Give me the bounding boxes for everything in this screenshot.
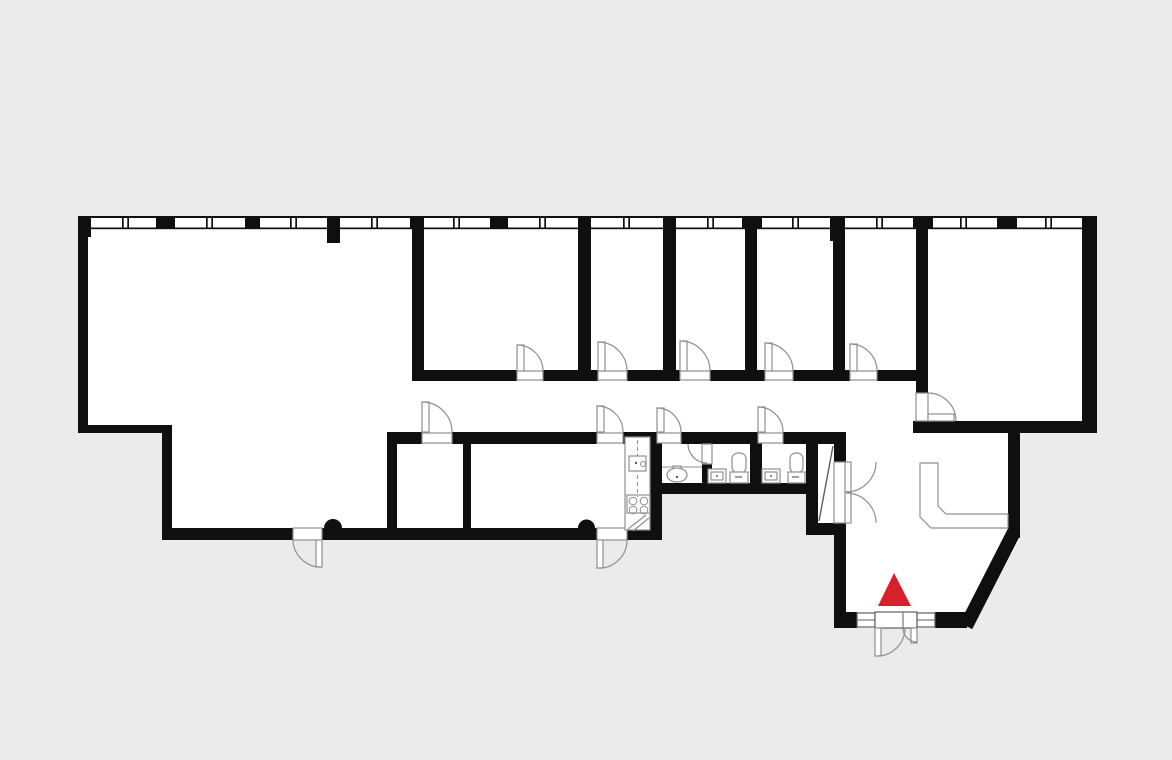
- bath-a-basin: [667, 468, 687, 482]
- left-step-wall: [78, 425, 172, 433]
- window-pier: [578, 217, 591, 229]
- mullion-bar: [544, 217, 546, 229]
- bath-c-right-wall: [806, 432, 818, 535]
- wall-fg-upper: [916, 229, 928, 393]
- mullion-bar: [792, 217, 794, 229]
- window-pier: [913, 217, 933, 229]
- mullion-bar: [1045, 217, 1047, 229]
- mullion-bar: [539, 217, 541, 229]
- door-leaf: [928, 414, 954, 421]
- mullion-bar: [623, 217, 625, 229]
- wall-fg-lower: [916, 421, 928, 433]
- top-left-corner-block: [78, 217, 91, 237]
- door-leaf: [765, 343, 772, 371]
- left-lower-wall: [162, 433, 172, 540]
- mullion-bar: [628, 217, 630, 229]
- door-leaf: [758, 407, 765, 432]
- entrance-right-wall: [1008, 433, 1020, 538]
- window-pier: [742, 217, 762, 229]
- mullion-bar: [1050, 217, 1052, 229]
- window-pier: [245, 217, 260, 229]
- bath-c-basin-drain: [770, 475, 772, 477]
- window-pier: [997, 217, 1017, 229]
- window-pier: [663, 217, 676, 229]
- window-pier: [830, 217, 845, 229]
- mullion-bar: [122, 217, 124, 229]
- door-sill: [422, 433, 452, 443]
- mullion-bar: [453, 217, 455, 229]
- door-leaf: [597, 540, 603, 568]
- rooms-bottom-wall-3: [627, 370, 680, 381]
- door-leaf: [850, 344, 857, 371]
- bath-b-toilet-bowl: [732, 453, 746, 473]
- column-top-wall: [327, 229, 340, 243]
- divider-wall-bc: [578, 229, 591, 381]
- door-sill: [916, 393, 928, 421]
- door-sill: [765, 371, 793, 380]
- kitchen-sink-drain: [635, 462, 637, 464]
- double-door-leaf-upper: [845, 462, 851, 492]
- mullion-bar: [127, 217, 129, 229]
- rooms-bottom-wall-1: [412, 370, 517, 381]
- door-leaf: [316, 540, 322, 567]
- door-sill: [597, 433, 623, 443]
- door-leaf: [680, 341, 687, 371]
- mullion-bar: [876, 217, 878, 229]
- double-door-leaf-lower: [845, 492, 851, 523]
- door-leaf: [657, 408, 664, 432]
- corridor-bottom-wall-2: [452, 432, 597, 444]
- double-door-sill: [834, 462, 846, 523]
- rooms-bottom-wall-4: [710, 370, 765, 381]
- door-sill: [598, 371, 627, 380]
- door-leaf: [422, 402, 429, 432]
- mullion-bar: [206, 217, 208, 229]
- mullion-bar: [295, 217, 297, 229]
- mullion-bar: [290, 217, 292, 229]
- entrance-door-leaf-left: [875, 628, 881, 656]
- mullion-bar: [211, 217, 213, 229]
- divider-wall-ef: [833, 229, 845, 381]
- divider-wall-cd: [663, 229, 676, 381]
- mullion-bar: [458, 217, 460, 229]
- bath-b-basin-drain: [716, 475, 718, 477]
- corridor-bottom-wall-4: [681, 432, 758, 444]
- bath-bottom-wall: [650, 483, 818, 494]
- door-leaf: [517, 345, 524, 371]
- right-exterior-wall: [1082, 217, 1097, 433]
- door-sill: [293, 528, 322, 540]
- entrance-bottom-wall-left: [834, 612, 857, 628]
- door-sill: [758, 433, 783, 443]
- windows-layer: [78, 216, 1097, 229]
- door-sill: [702, 444, 712, 464]
- room-g-bottom-wall: [913, 421, 1097, 433]
- room1-kitchen-wall: [463, 444, 471, 528]
- shaft-right-wall-top: [834, 432, 846, 462]
- shaft-bottom-wall: [806, 523, 846, 535]
- window-pier: [156, 217, 175, 229]
- divider-wall-ab: [412, 229, 424, 381]
- door-sill: [680, 371, 710, 380]
- mullion-bar: [712, 217, 714, 229]
- mullion-bar: [960, 217, 962, 229]
- room1-left-wall: [387, 432, 397, 540]
- mullion-bar: [965, 217, 967, 229]
- divider-wall-de: [745, 229, 757, 381]
- rooms-bottom-wall-2: [543, 370, 598, 381]
- floor-plan-svg: [0, 0, 1172, 760]
- door-sill: [850, 371, 877, 380]
- rooms-bottom-wall-5: [793, 370, 850, 381]
- window-pier: [410, 217, 424, 229]
- bath-c-toilet-bowl: [790, 453, 803, 473]
- door-sill: [517, 371, 543, 380]
- mullion-bar: [371, 217, 373, 229]
- door-leaf: [598, 342, 605, 371]
- bottom-wall-b: [322, 528, 597, 540]
- floor-plan-page: [0, 0, 1172, 760]
- door-sill: [657, 433, 681, 443]
- bath-a-drain: [676, 476, 678, 478]
- window-pier: [490, 217, 508, 229]
- entrance-door-band: [875, 612, 917, 628]
- left-exterior-wall: [78, 217, 88, 433]
- kitchen-sink: [629, 456, 646, 471]
- bottom-wall-a: [162, 528, 293, 540]
- pier-bump-ef: [830, 229, 845, 241]
- window-pier: [327, 217, 340, 229]
- door-sill: [597, 528, 627, 540]
- mullion-bar: [707, 217, 709, 229]
- mullion-bar: [376, 217, 378, 229]
- door-leaf: [597, 406, 604, 432]
- mullion-bar: [881, 217, 883, 229]
- mullion-bar: [797, 217, 799, 229]
- rooms-bottom-wall-6: [877, 370, 916, 381]
